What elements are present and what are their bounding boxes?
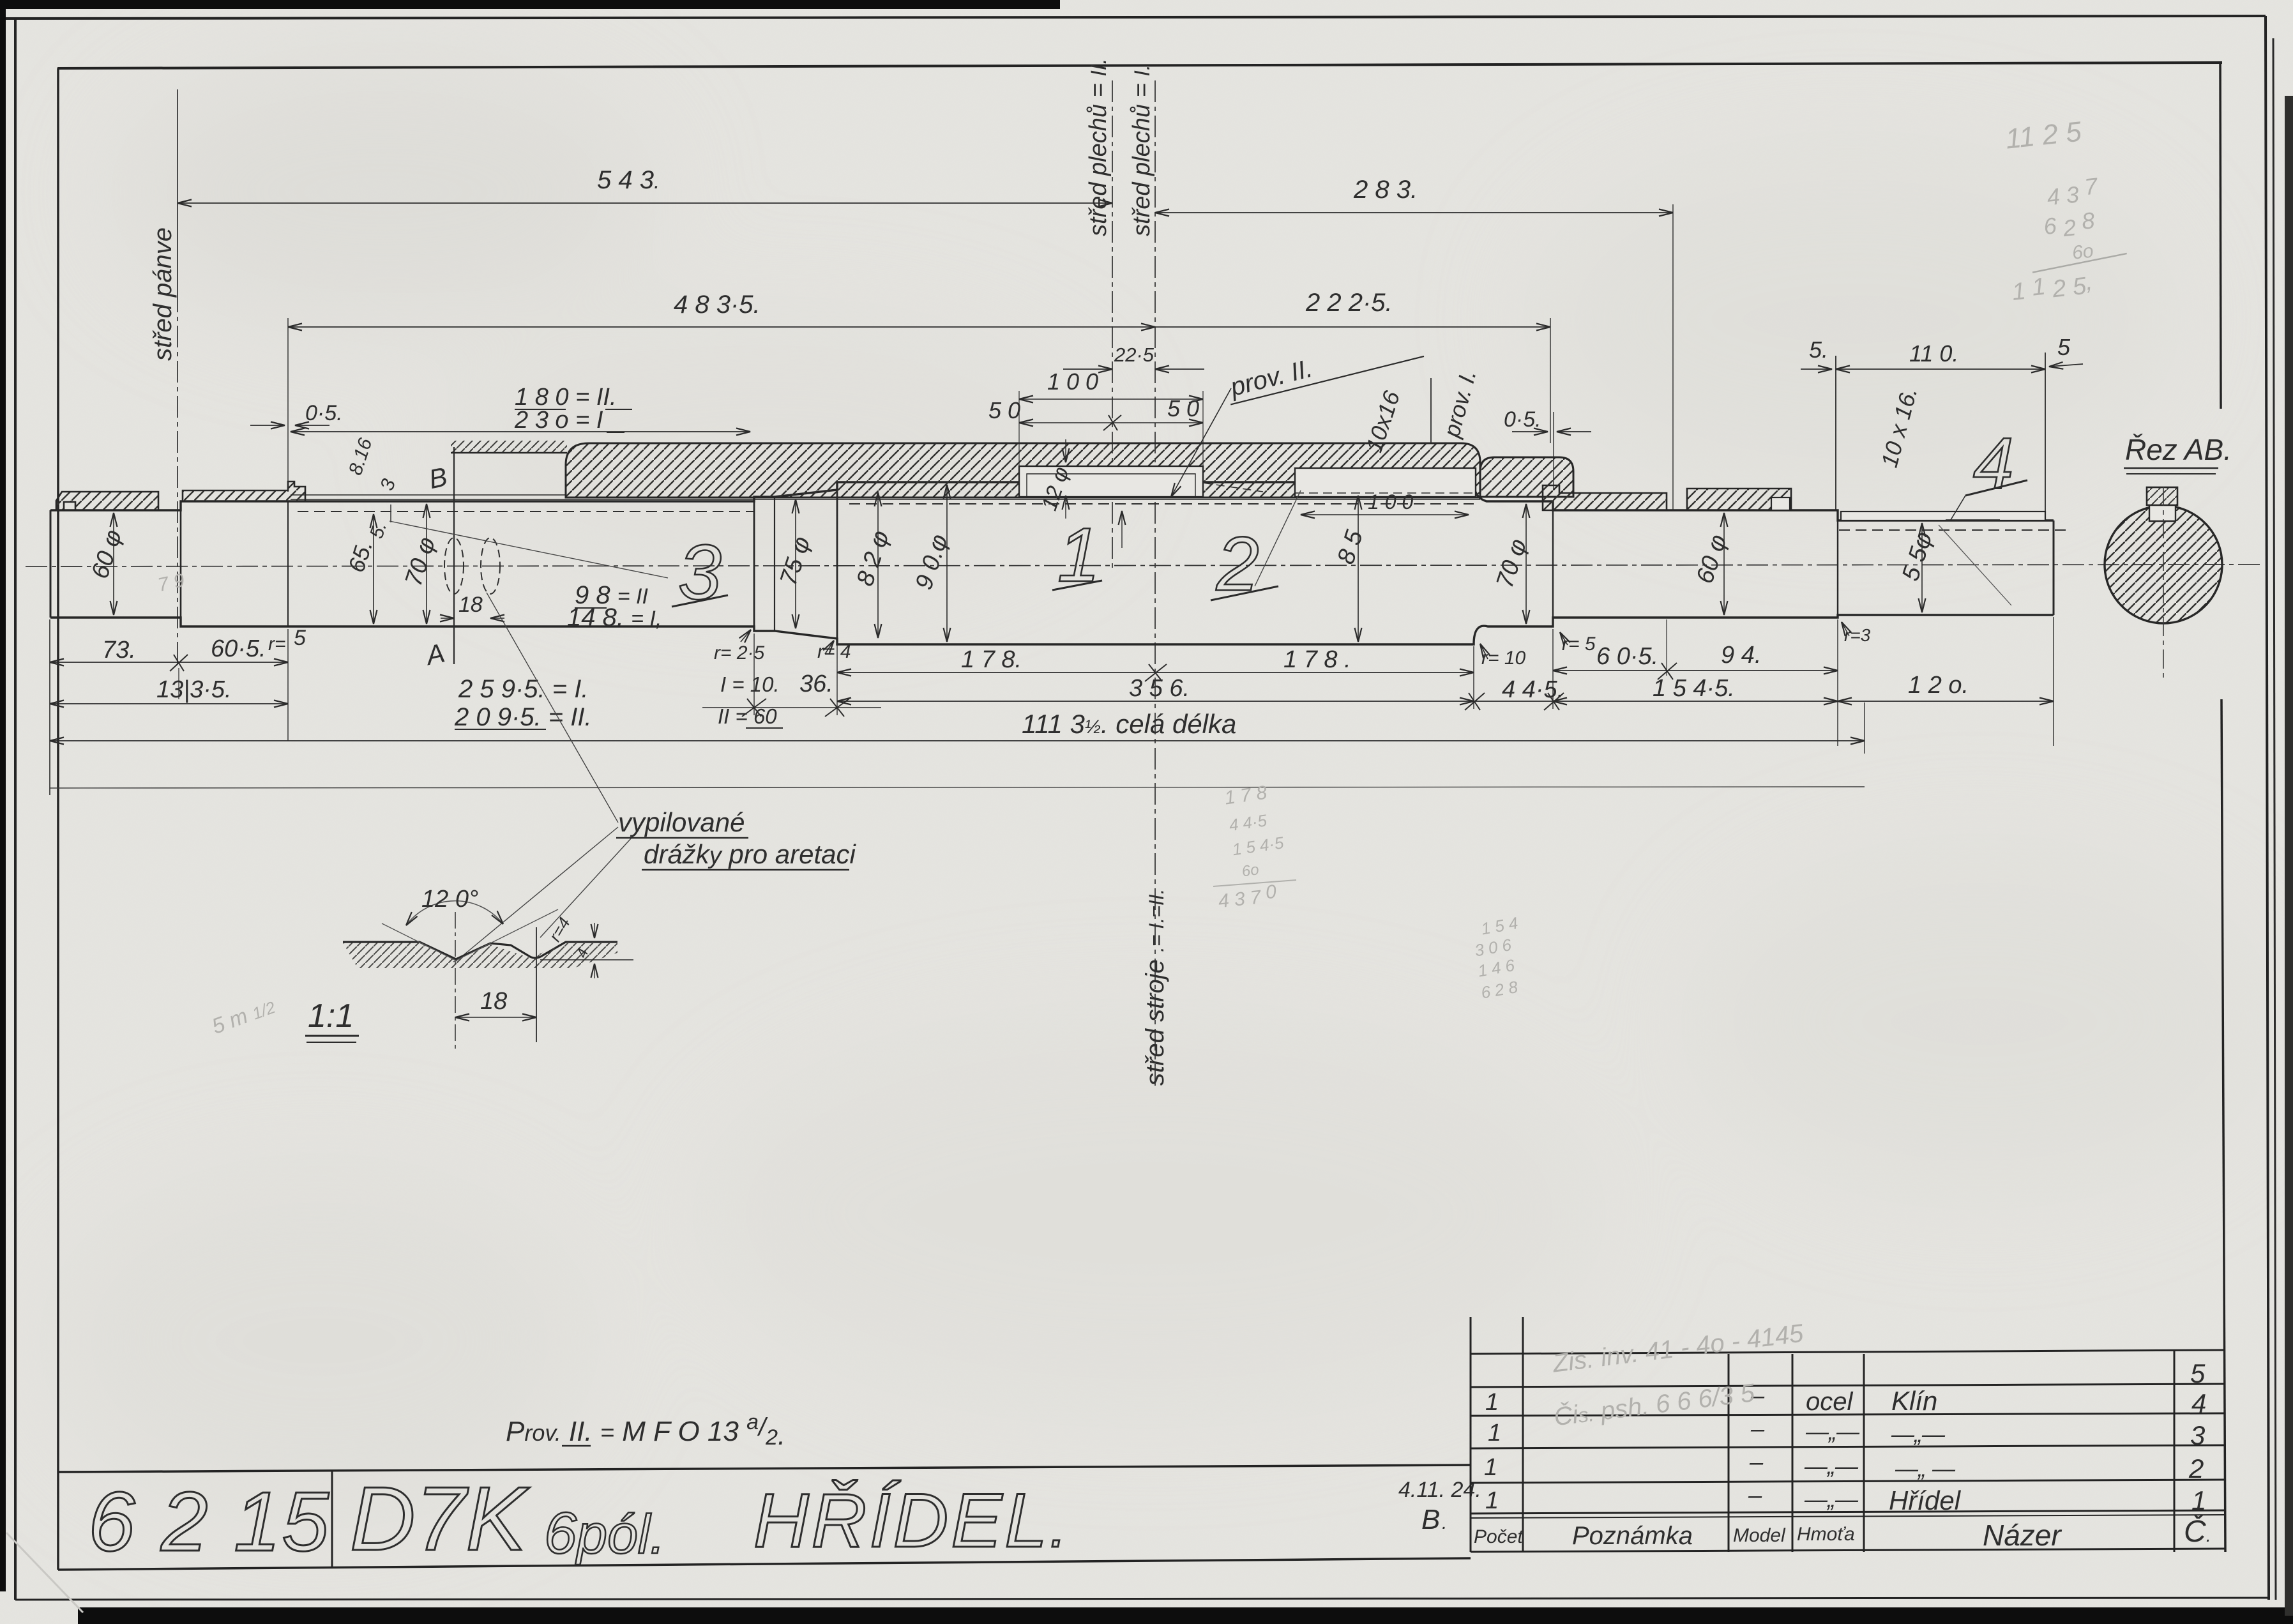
svg-text:Názer: Názer: [1983, 1519, 2062, 1552]
svg-text:1: 1: [2191, 1485, 2206, 1515]
svg-text:B: B: [1421, 1504, 1440, 1535]
svg-text:1: 1: [1485, 1389, 1499, 1416]
svg-text:1 0 0: 1 0 0: [1047, 368, 1098, 395]
svg-text:6o: 6o: [1241, 861, 1260, 880]
svg-text:73.: 73.: [102, 637, 136, 664]
svg-text:2 3 o = I: 2 3 o = I: [514, 407, 603, 434]
svg-text:6 2 15: 6 2 15: [88, 1475, 330, 1568]
svg-text:—„—: —„—: [1891, 1421, 1946, 1447]
svg-text:ocel: ocel: [1806, 1388, 1853, 1416]
svg-text:1: 1: [1488, 1420, 1501, 1446]
svg-text:18: 18: [480, 988, 507, 1015]
svg-text:9 4.: 9 4.: [1721, 642, 1761, 669]
svg-text:—„—: —„—: [1804, 1486, 1859, 1512]
svg-text:13|3·5.: 13|3·5.: [156, 676, 232, 703]
svg-text:6 0·5.: 6 0·5.: [1596, 643, 1658, 670]
svg-text:0·5.: 0·5.: [305, 401, 343, 425]
svg-text:0·5.: 0·5.: [1504, 407, 1541, 432]
svg-text:Poznámka: Poznámka: [1572, 1522, 1693, 1550]
svg-text:5 0: 5 0: [988, 397, 1020, 423]
svg-text:drážky pro aretaci: drážky pro aretaci: [644, 839, 856, 869]
svg-text:4 8 3·5.: 4 8 3·5.: [674, 291, 761, 319]
svg-text:18: 18: [458, 593, 483, 617]
svg-text:3 5 6.: 3 5 6.: [1129, 675, 1190, 702]
svg-text:Počet: Počet: [1474, 1526, 1524, 1547]
svg-text:4: 4: [2191, 1388, 2206, 1418]
svg-text:střed stroje .= I.=II.: střed stroje .= I.=II.: [1141, 888, 1169, 1086]
svg-text:.: .: [1442, 1512, 1447, 1533]
svg-text:1 0 0: 1 0 0: [1368, 490, 1413, 513]
svg-text:D7K: D7K: [350, 1468, 530, 1570]
svg-text:3: 3: [678, 529, 722, 616]
svg-text:1: 1: [1484, 1454, 1497, 1481]
svg-text:2 2 2·5.: 2 2 2·5.: [1305, 289, 1393, 317]
svg-text:5 4 3.: 5 4 3.: [597, 166, 660, 194]
svg-text:střed plechů = I.: střed plechů = I.: [1128, 65, 1155, 236]
svg-text:36.: 36.: [799, 671, 833, 697]
svg-text:střed pánve: střed pánve: [149, 227, 177, 361]
svg-text:3: 3: [2190, 1420, 2205, 1450]
svg-text:HŘÍDEL.: HŘÍDEL.: [753, 1478, 1070, 1563]
svg-text:2: 2: [2188, 1453, 2204, 1484]
svg-text:r= 10: r= 10: [1481, 648, 1526, 669]
svg-text:Hmoťa: Hmoťa: [1797, 1524, 1855, 1545]
svg-text:11 0.: 11 0.: [1909, 340, 1958, 367]
svg-text:—„—: —„—: [1805, 1418, 1860, 1445]
svg-text:Hřídel: Hřídel: [1889, 1485, 1962, 1515]
svg-text:12 0°: 12 0°: [421, 886, 478, 913]
svg-text:–: –: [1750, 1416, 1765, 1443]
svg-text:1 5 4·5.: 1 5 4·5.: [1653, 675, 1735, 702]
svg-text:1 7 8 .: 1 7 8 .: [1283, 646, 1351, 673]
svg-text:Řez AB.: Řez AB.: [2125, 433, 2232, 466]
svg-text:r=3: r=3: [1844, 625, 1871, 645]
svg-text:111 3½. celá délka: 111 3½. celá délka: [1022, 709, 1236, 739]
svg-text:5: 5: [2190, 1358, 2206, 1388]
svg-text:4.11. 24.: 4.11. 24.: [1398, 1478, 1481, 1502]
svg-text:1 2 o.: 1 2 o.: [1908, 672, 1969, 699]
svg-text:I = 10.: I = 10.: [720, 672, 780, 696]
svg-text:2 8 3.: 2 8 3.: [1353, 176, 1418, 204]
svg-text:—„—: —„—: [1804, 1453, 1859, 1479]
svg-text:5 0: 5 0: [1167, 395, 1199, 421]
svg-text:Klín: Klín: [1891, 1386, 1937, 1416]
svg-text:—„ —: —„ —: [1895, 1455, 1956, 1482]
svg-text:2 5 9·5. = I.: 2 5 9·5. = I.: [458, 675, 588, 703]
svg-text:2 0 9·5. = II.: 2 0 9·5. = II.: [454, 703, 592, 731]
svg-text:60·5.: 60·5.: [211, 635, 266, 662]
svg-text:4 4·5.: 4 4·5.: [1502, 676, 1564, 703]
svg-text:vypilované: vypilované: [618, 807, 745, 837]
svg-text:–: –: [1749, 1449, 1764, 1476]
svg-text:22·5: 22·5: [1114, 344, 1154, 366]
svg-text:5: 5: [2057, 334, 2071, 360]
svg-text:1 7 8.: 1 7 8.: [961, 646, 1022, 673]
svg-text:r=: r=: [268, 634, 286, 655]
svg-text:–: –: [1748, 1482, 1762, 1509]
svg-text:1:1: 1:1: [308, 998, 354, 1035]
svg-text:1: 1: [1485, 1487, 1499, 1514]
svg-text:r= 4: r= 4: [817, 641, 851, 662]
svg-text:Model: Model: [1733, 1525, 1786, 1546]
svg-text:r= 2·5: r= 2·5: [714, 642, 765, 664]
svg-text:6pól.: 6pól.: [544, 1501, 665, 1566]
svg-text:5.: 5.: [1809, 337, 1828, 363]
svg-text:střed plechů = II.: střed plechů = II.: [1085, 58, 1112, 236]
svg-text:5: 5: [294, 626, 306, 650]
